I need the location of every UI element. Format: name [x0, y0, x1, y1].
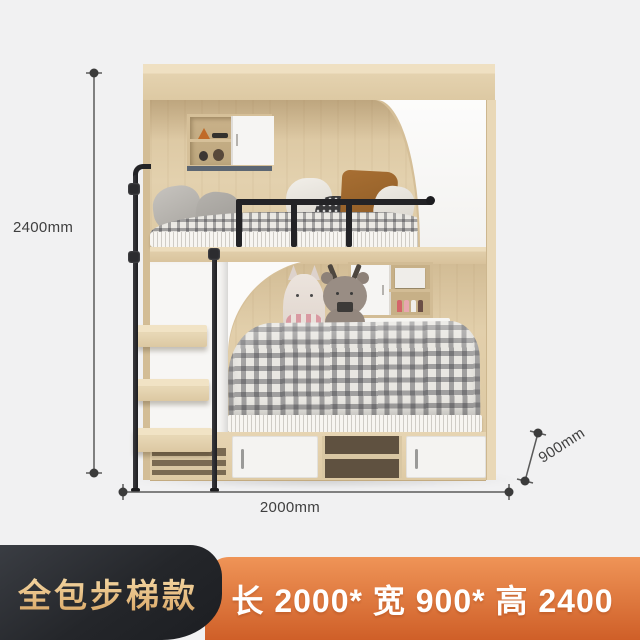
decor-glasses	[212, 133, 228, 138]
bear-bow	[337, 302, 353, 312]
top-frame-beam	[143, 64, 495, 101]
left-side-panel	[143, 100, 150, 480]
drawer-handle	[415, 449, 418, 469]
guard-rail-mount	[426, 196, 435, 205]
open-shelf	[190, 117, 234, 165]
stair-step	[134, 428, 212, 452]
depth-dimension-label: 900mm	[536, 424, 588, 466]
top-shelf-cabinet	[187, 114, 272, 168]
product-image: 2400mm 2000mm 900mm 长 2000* 宽 900* 高 240…	[0, 0, 640, 640]
art-pattern	[398, 272, 422, 275]
shelf-bottom-trim	[187, 166, 272, 171]
rail-mount-plate	[128, 251, 140, 263]
art-pattern	[398, 279, 422, 282]
door-handle	[382, 285, 384, 295]
sliding-door	[231, 116, 274, 165]
ladder-handrail-left	[133, 175, 138, 490]
style-tag-banner: 全包步梯款	[0, 545, 222, 640]
ladder-handrail-right	[212, 252, 217, 490]
bunk-bed	[143, 64, 495, 480]
shelf-divider	[190, 139, 234, 142]
size-banner-text: 长 2000* 宽 900* 高 2400	[231, 576, 613, 622]
size-banner: 长 2000* 宽 900* 高 2400	[205, 557, 640, 640]
rail-foot	[210, 488, 219, 492]
drawer-handle	[241, 449, 244, 469]
bear-eye	[350, 292, 353, 295]
right-side-panel	[486, 100, 496, 480]
cat-eye	[310, 294, 313, 297]
bottom-bunk-duvet	[227, 321, 480, 424]
open-storage-shelf	[322, 436, 402, 478]
guard-rail	[236, 199, 434, 205]
stair-step	[137, 379, 209, 401]
rail-foot	[131, 488, 140, 492]
door-handle	[236, 134, 238, 146]
decor-bottle	[404, 300, 409, 312]
rail-mount-plate	[128, 183, 140, 195]
style-tag-text: 全包步梯款	[18, 569, 198, 617]
decor-bottle	[418, 300, 423, 312]
shelf-board	[325, 454, 399, 459]
top-bunk-mattress	[150, 232, 428, 247]
decor-bottle	[411, 300, 416, 312]
bottom-bunk-mattress	[228, 415, 482, 432]
rail-mount-plate	[208, 248, 220, 260]
guard-rail-post	[236, 199, 242, 247]
height-dimension-label: 2400mm	[13, 219, 73, 236]
cat-eye	[296, 294, 299, 297]
decor-art-box	[395, 268, 425, 288]
shelf-divider	[389, 289, 433, 292]
decor-cone	[198, 128, 210, 139]
decor-pot	[213, 149, 224, 161]
bear-eye	[336, 292, 339, 295]
storage-drawer	[406, 436, 486, 478]
guard-rail-post	[291, 199, 297, 247]
guard-rail-post	[346, 199, 352, 247]
decor-bottle	[397, 300, 402, 312]
length-dimension-label: 2000mm	[254, 499, 326, 516]
stair-step	[137, 325, 207, 347]
decor-pot	[199, 151, 208, 161]
storage-drawer	[232, 436, 318, 478]
